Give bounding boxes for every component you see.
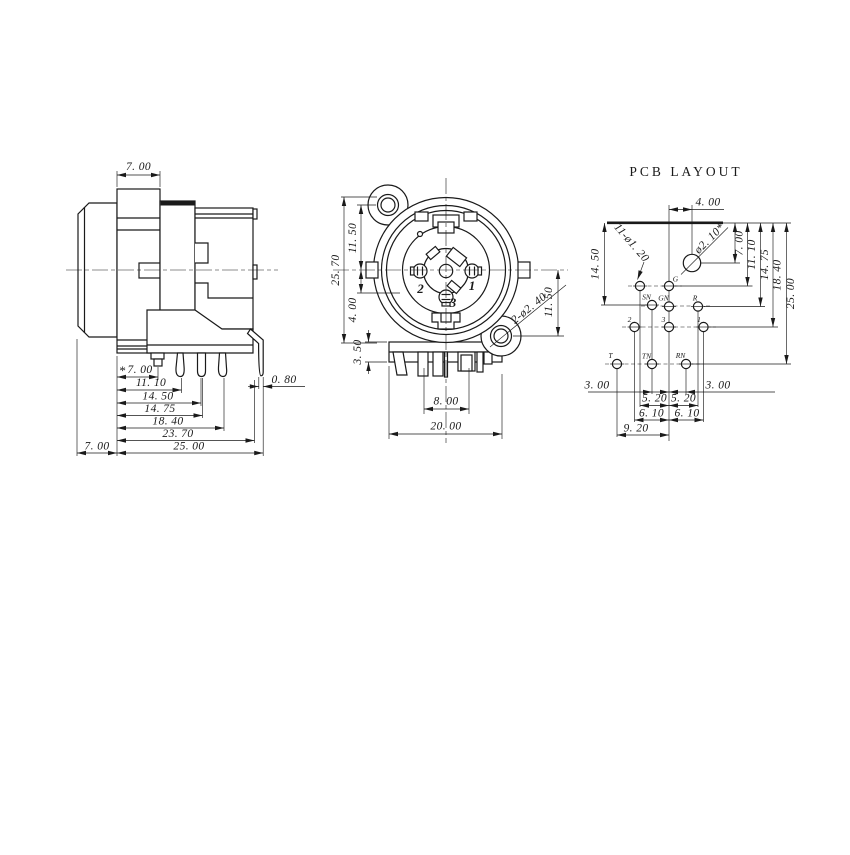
pcb-bottom-left3: 3. 00 (584, 380, 610, 392)
pcb-layout: PCB LAYOUT (584, 164, 798, 441)
pcb-title: PCB LAYOUT (629, 164, 742, 179)
pad-label-3: 3 (661, 315, 666, 324)
pcb-bottom-right3: 3. 00 (705, 380, 731, 392)
pad-label-g: G (673, 275, 679, 284)
technical-drawing: 7. 00 * 7. 00 11. 10 14. 50 14. 75 18. 4… (0, 0, 850, 850)
pcb-big-hole (683, 254, 700, 271)
side-pin-b (198, 353, 206, 377)
pcb-dim-520b: 5. 20 (671, 393, 696, 405)
pad-label-r: R (692, 294, 698, 303)
pad-label-gn: GN (658, 294, 669, 303)
pcb-right-dim-4: 25. 00 (785, 278, 797, 309)
pcb-dim-920: 9. 20 (624, 423, 649, 435)
dim-18-40: 18. 40 (152, 416, 183, 428)
pcb-dim-610a: 6. 10 (639, 408, 664, 420)
dim-25-00: 25. 00 (173, 441, 204, 453)
side-flange-notch (139, 263, 160, 278)
side-pin-a (176, 353, 184, 377)
dim-front-bracket: 3. 50 (352, 340, 364, 366)
front-pin3-label: 3 (449, 295, 457, 310)
front-pin2-contact (413, 264, 427, 278)
dim-11-10: 11. 10 (136, 377, 166, 389)
pad-label-sn: SN (642, 293, 652, 302)
dim-front-pin-span: 8. 00 (434, 396, 459, 408)
pad-label-t: T (608, 351, 613, 360)
pad-label-rn: RN (675, 351, 687, 360)
front-pin1-label: 1 (469, 278, 476, 293)
dim-14-75: 14. 75 (144, 403, 175, 415)
dim-front-height: 25. 70 (330, 254, 342, 285)
pcb-big-hole-note: ø2. 10* (692, 221, 728, 257)
dim-barrel-depth: 7. 00 (85, 441, 110, 453)
dim-star: * (119, 363, 126, 378)
pcb-holes (612, 254, 708, 368)
pcb-top-dim: 4. 00 (696, 197, 721, 209)
pcb-right-dim-2: 14. 75 (759, 249, 771, 280)
pad-label-2: 2 (628, 315, 632, 324)
front-view: 2 1 3 25. 70 11. 50 4. 00 3. 50 (330, 178, 568, 443)
pcb-left-dim: 14. 50 (590, 248, 602, 279)
side-body-right (195, 208, 253, 329)
dim-pin-thickness: 0. 80 (272, 374, 297, 386)
dim-23-70: 23. 70 (162, 428, 193, 440)
side-view: 7. 00 * 7. 00 11. 10 14. 50 14. 75 18. 4… (66, 161, 305, 456)
pcb-dim-520a: 5. 20 (642, 393, 667, 405)
pcb-right-dim-3: 18. 40 (772, 259, 784, 290)
pad-label-1: 1 (697, 315, 701, 324)
pcb-dim-610b: 6. 10 (675, 408, 700, 420)
pcb-holes-note: 11-ø1. 20 (611, 221, 651, 264)
dim-front-width: 20. 00 (430, 421, 461, 433)
pcb-bottom-dimensions: 3. 00 3. 00 5. 20 5. 20 6. 10 6. 10 9. 2… (584, 380, 776, 436)
dim-14-50: 14. 50 (142, 391, 173, 403)
dim-flange-width: 7. 00 (126, 161, 151, 173)
pcb-right-dim-0: 7. 00 (734, 231, 746, 256)
pad-label-tn: TN (642, 352, 652, 361)
dim-7-00: 7. 00 (128, 364, 153, 376)
front-pin2-label: 2 (416, 281, 424, 296)
drawing-page: 7. 00 * 7. 00 11. 10 14. 50 14. 75 18. 4… (0, 0, 850, 850)
side-locator-tab (151, 353, 164, 359)
dim-front-upper: 11. 50 (347, 223, 359, 253)
front-pin1-contact (465, 264, 479, 278)
dim-front-lower: 4. 00 (347, 298, 359, 323)
side-pin-c (218, 353, 226, 377)
pcb-right-dim-1: 11. 10 (746, 239, 758, 269)
pcb-pad-labels: G SN GN R 2 3 1 T TN RN (608, 275, 700, 361)
